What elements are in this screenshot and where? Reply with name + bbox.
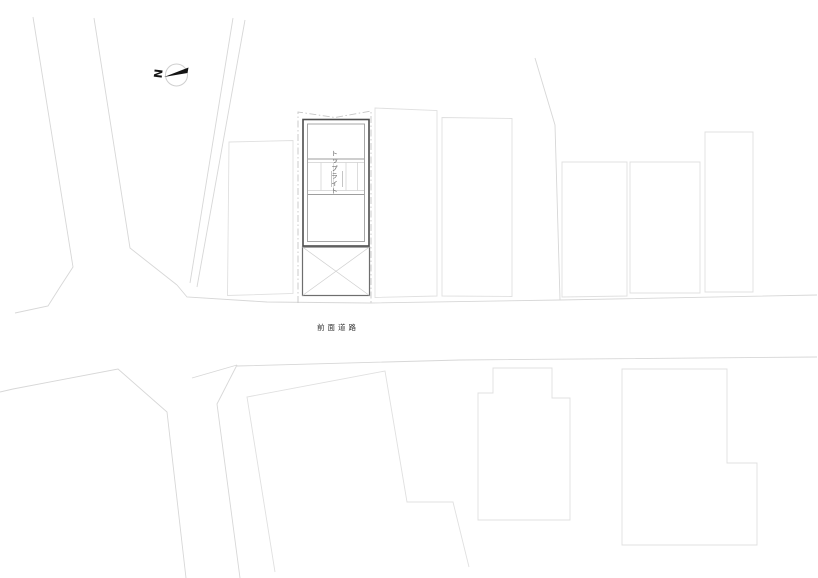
- south-notched-building: [478, 368, 570, 520]
- neighbor-east2-building: [442, 118, 512, 297]
- southwest-block-outline: [0, 369, 186, 578]
- road-lines-group: [0, 17, 817, 578]
- south-middle-building: [247, 371, 469, 572]
- east-block-building2: [630, 162, 700, 293]
- front-road-south-edge: [237, 357, 817, 366]
- south-road-east-edge: [217, 365, 240, 578]
- west-road-parallel-edge-a: [190, 18, 233, 283]
- neighbor-buildings-group: [228, 108, 758, 572]
- south-l-shaped-building: [622, 369, 757, 545]
- site-boundary: [298, 111, 371, 303]
- west-road-right-edge: [94, 18, 177, 285]
- north-arrow-circle: [166, 64, 188, 86]
- front-road-label: 前面道路: [317, 324, 359, 332]
- site-plan-drawing: [0, 0, 818, 578]
- south-road-west-corner: [192, 365, 237, 378]
- west-road-parallel-edge-b: [197, 20, 245, 287]
- neighbor-east1-building: [375, 108, 437, 298]
- north-letter: N: [152, 68, 164, 78]
- site-plan-canvas: N トップライト 前面道路: [0, 0, 818, 578]
- east-block-building1: [562, 162, 627, 297]
- east-block-boundary: [535, 58, 560, 300]
- skylight-label: トップライト: [330, 150, 337, 195]
- west-road-left-edge: [15, 17, 73, 313]
- north-arrow: [164, 64, 189, 86]
- east-block-building3: [705, 132, 753, 292]
- neighbor-west-building: [228, 141, 294, 296]
- main-building-group: [303, 120, 370, 296]
